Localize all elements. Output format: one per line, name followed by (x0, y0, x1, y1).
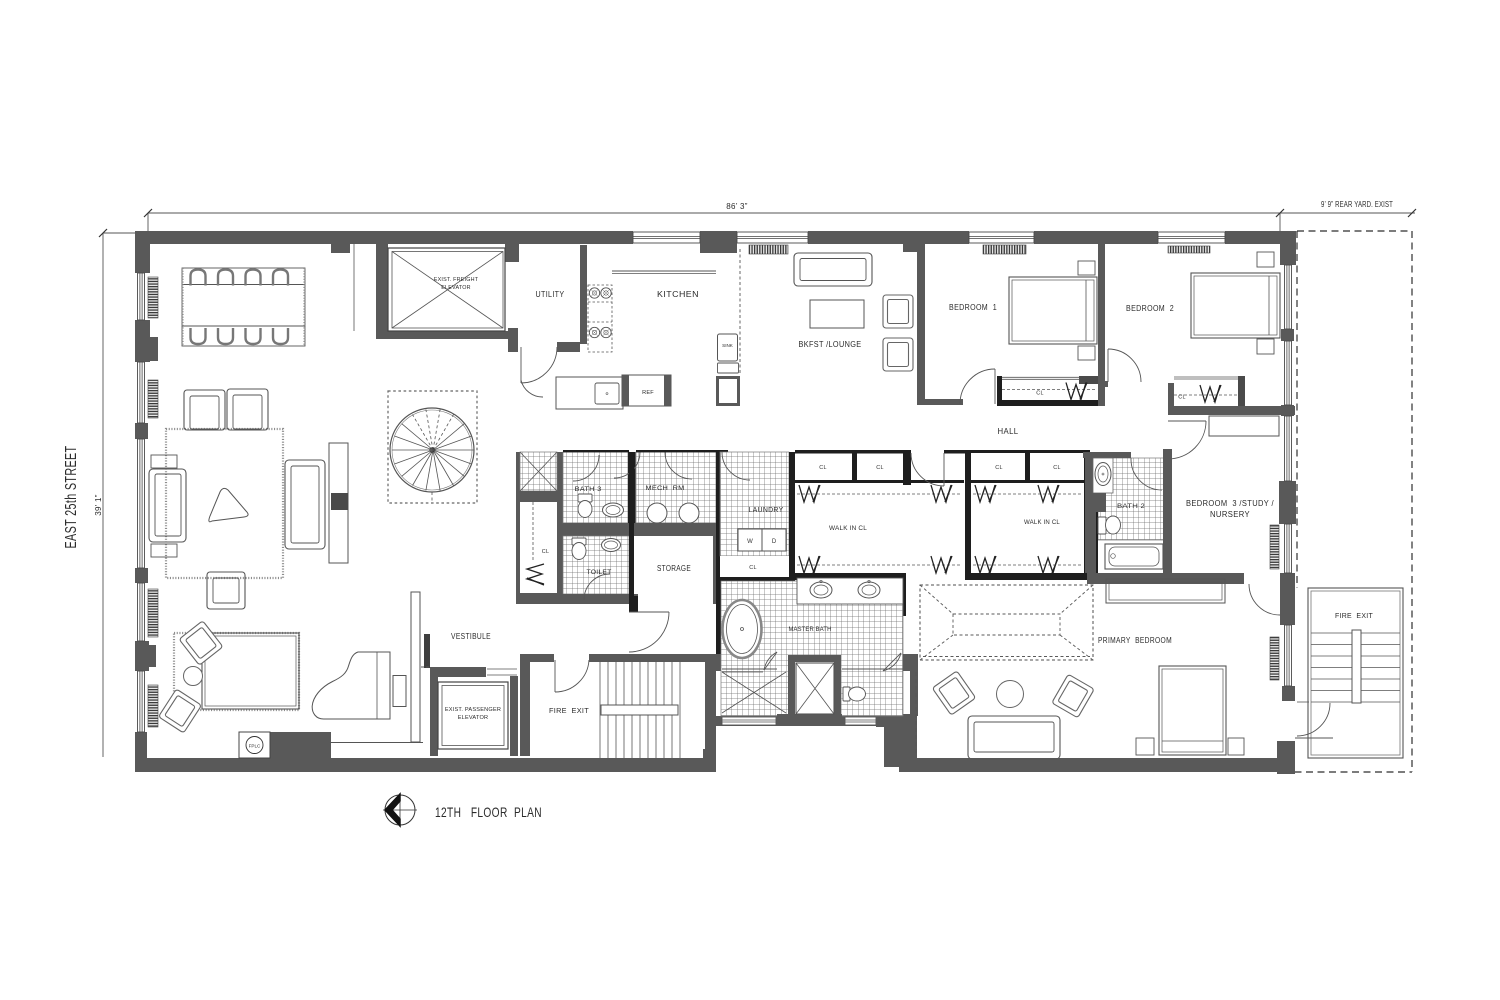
svg-text:FIRE EXIT: FIRE EXIT (549, 706, 589, 715)
svg-text:NURSERY: NURSERY (1210, 510, 1250, 519)
svg-text:PRIMARY BEDROOM: PRIMARY BEDROOM (1098, 636, 1172, 645)
svg-text:SINK: SINK (722, 343, 734, 348)
svg-text:BEDROOM 2: BEDROOM 2 (1126, 304, 1174, 313)
svg-text:CL: CL (542, 549, 550, 555)
svg-text:BKFST /LOUNGE: BKFST /LOUNGE (799, 340, 862, 349)
svg-text:FIRE EXIT: FIRE EXIT (1335, 611, 1373, 620)
svg-text:BEDROOM 3 /STUDY /: BEDROOM 3 /STUDY / (1186, 499, 1274, 508)
svg-text:FPLC: FPLC (249, 744, 261, 749)
svg-text:D: D (772, 539, 777, 545)
svg-text:CL: CL (1053, 465, 1061, 471)
svg-text:WALK IN CL: WALK IN CL (829, 525, 867, 532)
svg-text:39’ 1”: 39’ 1” (94, 494, 103, 516)
svg-text:BEDROOM 1: BEDROOM 1 (949, 303, 997, 312)
svg-text:VESTIBULE: VESTIBULE (451, 632, 491, 641)
svg-text:UTILITY: UTILITY (536, 290, 565, 299)
svg-text:BATH 2: BATH 2 (1117, 503, 1145, 510)
svg-text:BATH 3: BATH 3 (575, 486, 602, 493)
svg-text:ELEVATOR: ELEVATOR (458, 715, 489, 721)
svg-text:TOILET: TOILET (587, 569, 612, 576)
svg-text:EXIST. PASSENGER: EXIST. PASSENGER (445, 707, 501, 713)
svg-text:HALL: HALL (998, 427, 1019, 436)
svg-text:EXIST. FREIGHT: EXIST. FREIGHT (434, 277, 479, 283)
svg-text:9’ 9” REAR YARD. EXIST: 9’ 9” REAR YARD. EXIST (1321, 200, 1393, 209)
svg-text:CL: CL (1036, 391, 1044, 397)
svg-text:W: W (747, 539, 753, 545)
svg-text:REF: REF (642, 390, 654, 396)
svg-text:ELEVATOR: ELEVATOR (441, 285, 470, 291)
svg-text:CL: CL (876, 465, 884, 471)
svg-text:LAUNDRY: LAUNDRY (749, 505, 784, 514)
svg-text:EAST 25th STREET: EAST 25th STREET (63, 445, 80, 548)
svg-text:CL: CL (995, 465, 1003, 471)
svg-text:WALK IN CL: WALK IN CL (1024, 519, 1060, 526)
svg-text:KITCHEN: KITCHEN (657, 290, 699, 299)
svg-text:CL: CL (749, 565, 757, 571)
svg-text:CL: CL (1178, 395, 1186, 401)
svg-text:MECH RM: MECH RM (646, 485, 685, 492)
svg-text:86’ 3”: 86’ 3” (726, 202, 748, 211)
svg-text:MASTER BATH: MASTER BATH (789, 626, 832, 633)
svg-text:CL: CL (819, 465, 827, 471)
svg-text:12TH FLOOR PLAN: 12TH FLOOR PLAN (435, 804, 542, 820)
svg-text:STORAGE: STORAGE (657, 564, 691, 573)
